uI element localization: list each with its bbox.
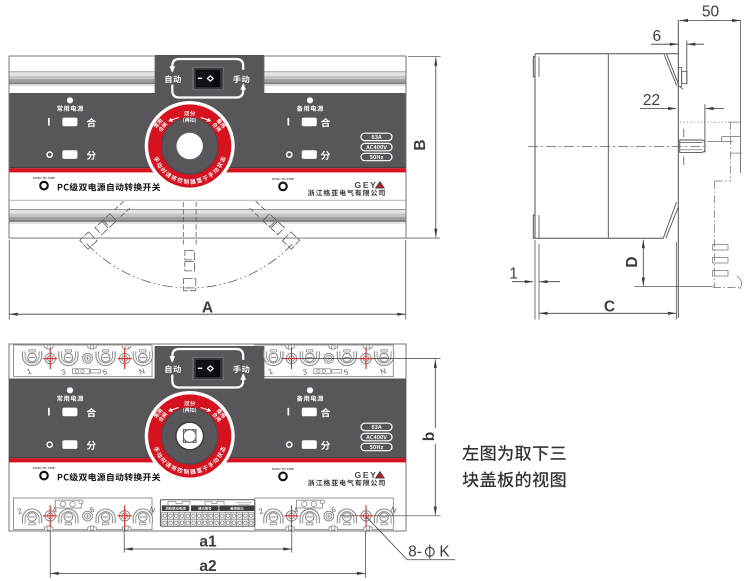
svg-text:A: A [202, 299, 213, 316]
svg-text:D: D [624, 256, 641, 267]
svg-text:GEY: GEY [355, 180, 378, 190]
svg-text:22: 22 [643, 92, 660, 109]
svg-text:B: B [412, 139, 429, 150]
svg-text:PUSH TO TRIP: PUSH TO TRIP [272, 467, 294, 471]
svg-text:PUSH TO TRIP: PUSH TO TRIP [33, 176, 55, 180]
svg-text:PUSH TO TRIP: PUSH TO TRIP [272, 177, 294, 181]
svg-text:a1: a1 [199, 534, 217, 551]
svg-text:6: 6 [652, 28, 661, 45]
svg-text:8-: 8- [408, 543, 422, 560]
svg-text:50: 50 [702, 4, 720, 21]
svg-text:b: b [421, 432, 438, 441]
svg-text:K: K [439, 543, 450, 560]
svg-text:PUSH TO TRIP: PUSH TO TRIP [33, 466, 55, 470]
svg-text:1: 1 [509, 266, 518, 283]
svg-text:a2: a2 [199, 558, 216, 575]
svg-text:GEY: GEY [355, 470, 378, 480]
svg-text:C: C [604, 298, 615, 315]
